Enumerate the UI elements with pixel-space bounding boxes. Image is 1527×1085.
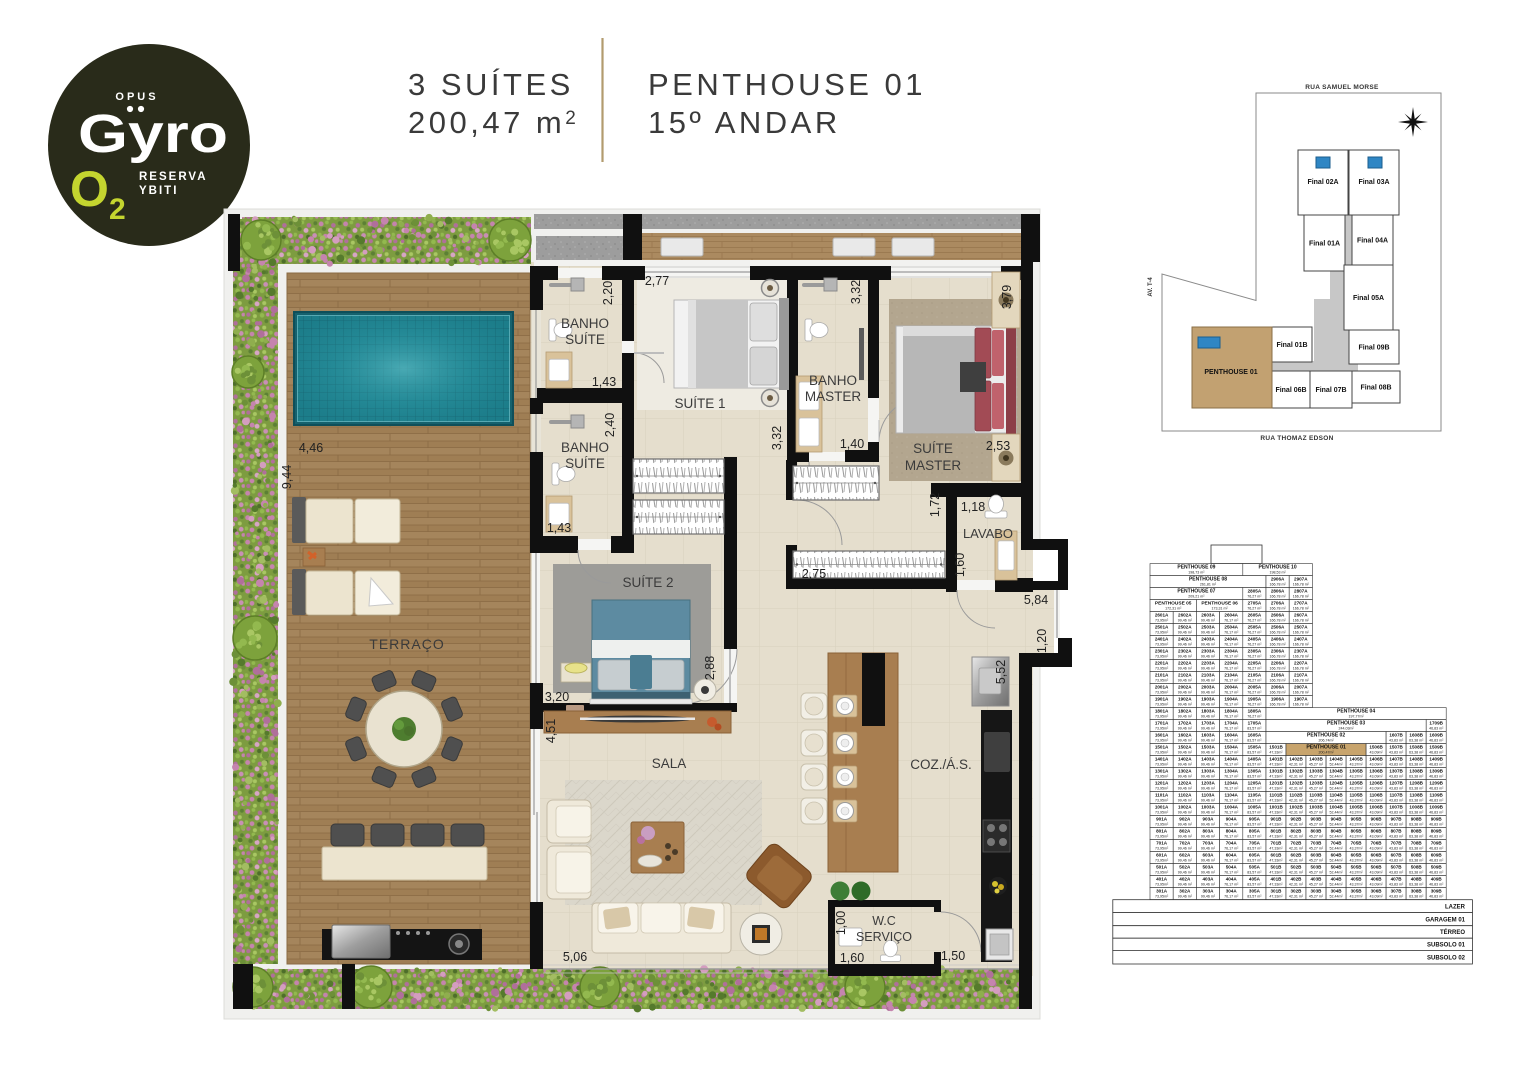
svg-text:1109B: 1109B bbox=[1430, 793, 1444, 798]
svg-text:1804A: 1804A bbox=[1224, 709, 1238, 714]
svg-text:99,46 m²: 99,46 m² bbox=[1178, 631, 1193, 635]
svg-text:166,78 m²: 166,78 m² bbox=[1293, 703, 1310, 707]
svg-text:701A: 701A bbox=[1156, 841, 1168, 846]
svg-text:2806A: 2806A bbox=[1271, 589, 1285, 594]
svg-text:99,46 m²: 99,46 m² bbox=[1178, 787, 1193, 791]
svg-text:408B: 408B bbox=[1411, 877, 1423, 882]
svg-text:46,83 m²: 46,83 m² bbox=[1429, 835, 1444, 839]
svg-text:MASTER: MASTER bbox=[905, 458, 962, 473]
svg-text:99,46 m²: 99,46 m² bbox=[1178, 643, 1193, 647]
svg-text:52,44m²: 52,44m² bbox=[1330, 799, 1344, 803]
svg-text:166,78 m²: 166,78 m² bbox=[1270, 607, 1287, 611]
svg-text:PENTHOUSE 01: PENTHOUSE 01 bbox=[648, 67, 926, 102]
svg-text:1504A: 1504A bbox=[1224, 745, 1238, 750]
svg-text:99,46 m²: 99,46 m² bbox=[1201, 655, 1216, 659]
svg-text:802A: 802A bbox=[1179, 829, 1191, 834]
svg-text:43,37m²: 43,37m² bbox=[1350, 895, 1364, 899]
svg-text:43,83 m²: 43,83 m² bbox=[1389, 835, 1404, 839]
svg-text:403B: 403B bbox=[1311, 877, 1323, 882]
svg-text:2107A: 2107A bbox=[1294, 673, 1308, 678]
svg-text:1205B: 1205B bbox=[1349, 781, 1363, 786]
svg-text:807B: 807B bbox=[1391, 829, 1403, 834]
svg-text:99,46 m²: 99,46 m² bbox=[1201, 715, 1216, 719]
svg-text:3,32: 3,32 bbox=[770, 426, 784, 450]
svg-text:166,78 m²: 166,78 m² bbox=[1270, 703, 1287, 707]
svg-text:RESERVA: RESERVA bbox=[139, 171, 208, 183]
svg-text:1003B: 1003B bbox=[1309, 805, 1323, 810]
svg-text:2101A: 2101A bbox=[1155, 673, 1169, 678]
svg-text:47,33m²: 47,33m² bbox=[1269, 763, 1283, 767]
svg-text:1105B: 1105B bbox=[1349, 793, 1363, 798]
svg-text:63,38 m²: 63,38 m² bbox=[1409, 883, 1424, 887]
svg-text:2005A: 2005A bbox=[1248, 685, 1262, 690]
svg-text:601A: 601A bbox=[1156, 853, 1168, 858]
svg-text:73,95m²: 73,95m² bbox=[1155, 775, 1169, 779]
svg-text:1305A: 1305A bbox=[1248, 769, 1262, 774]
svg-text:2504A: 2504A bbox=[1224, 625, 1238, 630]
svg-text:1508B: 1508B bbox=[1409, 745, 1423, 750]
svg-text:1008B: 1008B bbox=[1409, 805, 1423, 810]
svg-text:1904A: 1904A bbox=[1224, 697, 1238, 702]
svg-text:99,46 m²: 99,46 m² bbox=[1201, 787, 1216, 791]
svg-text:1007B: 1007B bbox=[1389, 805, 1403, 810]
svg-text:43,09m²: 43,09m² bbox=[1370, 871, 1384, 875]
svg-text:1608B: 1608B bbox=[1409, 733, 1423, 738]
svg-text:47,33m²: 47,33m² bbox=[1269, 847, 1283, 851]
svg-text:166,78 m²: 166,78 m² bbox=[1270, 691, 1287, 695]
svg-text:Final 01B: Final 01B bbox=[1276, 342, 1307, 349]
svg-text:BANHO: BANHO bbox=[561, 440, 609, 455]
svg-text:83,57 m²: 83,57 m² bbox=[1247, 859, 1262, 863]
svg-text:904A: 904A bbox=[1226, 817, 1238, 822]
svg-text:99,46 m²: 99,46 m² bbox=[1201, 847, 1216, 851]
svg-text:43,37m²: 43,37m² bbox=[1350, 883, 1364, 887]
svg-text:166,78 m²: 166,78 m² bbox=[1270, 619, 1287, 623]
svg-text:2401A: 2401A bbox=[1155, 637, 1169, 642]
svg-text:206,74m²: 206,74m² bbox=[1319, 739, 1335, 743]
svg-text:83,57 m²: 83,57 m² bbox=[1247, 751, 1262, 755]
svg-text:43,83 m²: 43,83 m² bbox=[1389, 775, 1404, 779]
svg-text:Final 02A: Final 02A bbox=[1307, 179, 1338, 186]
svg-text:166,78 m²: 166,78 m² bbox=[1293, 691, 1310, 695]
svg-text:99,46 m²: 99,46 m² bbox=[1178, 655, 1193, 659]
svg-text:1103A: 1103A bbox=[1201, 793, 1215, 798]
svg-text:43,83 m²: 43,83 m² bbox=[1389, 739, 1404, 743]
svg-text:73,95m²: 73,95m² bbox=[1155, 679, 1169, 683]
svg-text:46,83 m²: 46,83 m² bbox=[1429, 859, 1444, 863]
svg-text:SUÍTE 1: SUÍTE 1 bbox=[674, 396, 725, 411]
svg-text:45,27 m²: 45,27 m² bbox=[1309, 799, 1324, 803]
svg-text:302A: 302A bbox=[1179, 889, 1191, 894]
svg-text:43,09m²: 43,09m² bbox=[1370, 835, 1384, 839]
svg-text:1401A: 1401A bbox=[1155, 757, 1169, 762]
svg-text:2506A: 2506A bbox=[1271, 625, 1285, 630]
svg-text:604A: 604A bbox=[1226, 853, 1238, 858]
svg-text:166,78 m²: 166,78 m² bbox=[1270, 667, 1287, 671]
svg-text:O: O bbox=[70, 161, 109, 217]
svg-text:2305A: 2305A bbox=[1248, 649, 1262, 654]
svg-text:2301A: 2301A bbox=[1155, 649, 1169, 654]
svg-text:1405A: 1405A bbox=[1248, 757, 1262, 762]
svg-text:704B: 704B bbox=[1331, 841, 1343, 846]
svg-text:83,57 m²: 83,57 m² bbox=[1247, 775, 1262, 779]
svg-text:63,38 m²: 63,38 m² bbox=[1409, 775, 1424, 779]
svg-text:63,38 m²: 63,38 m² bbox=[1409, 763, 1424, 767]
svg-text:76,27 m²: 76,27 m² bbox=[1247, 643, 1262, 647]
svg-text:5,06: 5,06 bbox=[563, 950, 587, 964]
svg-text:1309B: 1309B bbox=[1429, 769, 1443, 774]
svg-text:MASTER: MASTER bbox=[805, 389, 862, 404]
svg-text:1902A: 1902A bbox=[1178, 697, 1192, 702]
svg-text:401B: 401B bbox=[1271, 877, 1283, 882]
svg-text:83,57 m²: 83,57 m² bbox=[1247, 823, 1262, 827]
svg-text:73,95m²: 73,95m² bbox=[1155, 895, 1169, 899]
svg-text:43,83 m²: 43,83 m² bbox=[1389, 811, 1404, 815]
svg-text:76,17 m²: 76,17 m² bbox=[1224, 643, 1239, 647]
svg-text:99,46 m²: 99,46 m² bbox=[1201, 823, 1216, 827]
svg-text:Gyro: Gyro bbox=[78, 104, 228, 164]
svg-text:505B: 505B bbox=[1351, 865, 1363, 870]
svg-text:76,17 m²: 76,17 m² bbox=[1224, 835, 1239, 839]
svg-text:LAZER: LAZER bbox=[1445, 904, 1466, 910]
svg-text:1205A: 1205A bbox=[1248, 781, 1262, 786]
svg-text:43,37m²: 43,37m² bbox=[1350, 835, 1364, 839]
svg-text:46,83 m²: 46,83 m² bbox=[1429, 811, 1444, 815]
svg-text:166,78 m²: 166,78 m² bbox=[1270, 595, 1287, 599]
svg-text:504B: 504B bbox=[1331, 865, 1343, 870]
svg-text:99,46 m²: 99,46 m² bbox=[1201, 727, 1216, 731]
svg-text:42,31 m²: 42,31 m² bbox=[1289, 787, 1304, 791]
svg-text:1409B: 1409B bbox=[1429, 757, 1443, 762]
svg-text:46,83 m²: 46,83 m² bbox=[1429, 787, 1444, 791]
svg-text:1604A: 1604A bbox=[1224, 733, 1238, 738]
svg-text:76,17 m²: 76,17 m² bbox=[1224, 619, 1239, 623]
svg-text:706B: 706B bbox=[1371, 841, 1383, 846]
svg-text:1304A: 1304A bbox=[1224, 769, 1238, 774]
svg-text:47,33m²: 47,33m² bbox=[1269, 871, 1283, 875]
svg-text:603A: 603A bbox=[1203, 853, 1215, 858]
svg-text:43,09m²: 43,09m² bbox=[1370, 895, 1384, 899]
svg-text:1107B: 1107B bbox=[1389, 793, 1403, 798]
svg-text:602A: 602A bbox=[1179, 853, 1191, 858]
svg-text:602B: 602B bbox=[1291, 853, 1303, 858]
svg-text:1,72: 1,72 bbox=[928, 493, 942, 517]
svg-text:1002A: 1002A bbox=[1178, 805, 1192, 810]
svg-text:99,46 m²: 99,46 m² bbox=[1201, 703, 1216, 707]
svg-text:1101B: 1101B bbox=[1269, 793, 1283, 798]
svg-text:43,83 m²: 43,83 m² bbox=[1389, 847, 1404, 851]
svg-text:166,78 m²: 166,78 m² bbox=[1293, 643, 1310, 647]
svg-text:73,95m²: 73,95m² bbox=[1155, 811, 1169, 815]
svg-text:YBITI: YBITI bbox=[139, 185, 178, 197]
svg-text:46,83 m²: 46,83 m² bbox=[1429, 775, 1444, 779]
svg-text:SUÍTE 2: SUÍTE 2 bbox=[622, 575, 673, 590]
svg-text:GARAGEM 01: GARAGEM 01 bbox=[1425, 918, 1465, 924]
svg-text:42,31 m²: 42,31 m² bbox=[1289, 835, 1304, 839]
svg-text:2602A: 2602A bbox=[1178, 613, 1192, 618]
svg-text:401A: 401A bbox=[1156, 877, 1168, 882]
svg-text:2501A: 2501A bbox=[1155, 625, 1169, 630]
svg-text:1901A: 1901A bbox=[1155, 697, 1169, 702]
svg-text:PENTHOUSE 01: PENTHOUSE 01 bbox=[1204, 369, 1257, 376]
svg-text:507B: 507B bbox=[1391, 865, 1403, 870]
svg-text:43,83 m²: 43,83 m² bbox=[1389, 751, 1404, 755]
svg-text:2505A: 2505A bbox=[1248, 625, 1262, 630]
svg-text:1302A: 1302A bbox=[1178, 769, 1192, 774]
svg-text:200,47m²: 200,47m² bbox=[1319, 751, 1335, 755]
svg-text:76,17 m²: 76,17 m² bbox=[1224, 775, 1239, 779]
svg-text:2,53: 2,53 bbox=[986, 439, 1010, 453]
svg-text:83,57 m²: 83,57 m² bbox=[1247, 727, 1262, 731]
svg-text:76,17 m²: 76,17 m² bbox=[1224, 787, 1239, 791]
svg-text:42,31 m²: 42,31 m² bbox=[1289, 775, 1304, 779]
svg-text:1,00: 1,00 bbox=[834, 911, 848, 935]
svg-text:99,46 m²: 99,46 m² bbox=[1201, 739, 1216, 743]
svg-text:76,17 m²: 76,17 m² bbox=[1224, 703, 1239, 707]
svg-text:808B: 808B bbox=[1411, 829, 1423, 834]
svg-text:305B: 305B bbox=[1351, 889, 1363, 894]
svg-text:503B: 503B bbox=[1311, 865, 1323, 870]
svg-text:805A: 805A bbox=[1249, 829, 1261, 834]
svg-text:99,46 m²: 99,46 m² bbox=[1201, 895, 1216, 899]
svg-text:99,46 m²: 99,46 m² bbox=[1178, 667, 1193, 671]
svg-text:1401B: 1401B bbox=[1269, 757, 1283, 762]
svg-text:4,51: 4,51 bbox=[544, 719, 558, 743]
svg-text:2103A: 2103A bbox=[1201, 673, 1215, 678]
svg-text:704A: 704A bbox=[1226, 841, 1238, 846]
svg-text:2707A: 2707A bbox=[1294, 601, 1308, 606]
svg-text:76,17 m²: 76,17 m² bbox=[1224, 847, 1239, 851]
svg-text:503A: 503A bbox=[1203, 865, 1215, 870]
svg-text:907B: 907B bbox=[1391, 817, 1403, 822]
svg-text:804B: 804B bbox=[1331, 829, 1343, 834]
svg-text:63,38 m²: 63,38 m² bbox=[1409, 811, 1424, 815]
svg-text:1903A: 1903A bbox=[1201, 697, 1215, 702]
svg-text:303B: 303B bbox=[1311, 889, 1323, 894]
svg-text:73,95m²: 73,95m² bbox=[1155, 691, 1169, 695]
svg-text:1801A: 1801A bbox=[1155, 709, 1169, 714]
svg-text:42,31 m²: 42,31 m² bbox=[1289, 763, 1304, 767]
svg-text:43,37m²: 43,37m² bbox=[1350, 787, 1364, 791]
svg-text:404B: 404B bbox=[1331, 877, 1343, 882]
svg-text:2606A: 2606A bbox=[1271, 613, 1285, 618]
svg-text:5,52: 5,52 bbox=[994, 660, 1008, 684]
svg-text:43,83 m²: 43,83 m² bbox=[1389, 871, 1404, 875]
svg-text:47,33m²: 47,33m² bbox=[1269, 823, 1283, 827]
svg-text:99,46 m²: 99,46 m² bbox=[1178, 799, 1193, 803]
svg-text:502B: 502B bbox=[1291, 865, 1303, 870]
svg-text:404A: 404A bbox=[1226, 877, 1238, 882]
svg-text:2706A: 2706A bbox=[1271, 601, 1285, 606]
svg-text:3,79: 3,79 bbox=[1000, 285, 1014, 309]
svg-text:1203A: 1203A bbox=[1201, 781, 1215, 786]
svg-text:1001A: 1001A bbox=[1155, 805, 1169, 810]
svg-text:1406B: 1406B bbox=[1369, 757, 1383, 762]
svg-text:902A: 902A bbox=[1179, 817, 1191, 822]
svg-text:173,31 m²: 173,31 m² bbox=[1212, 607, 1229, 611]
svg-text:73,95m²: 73,95m² bbox=[1155, 847, 1169, 851]
svg-text:45,27 m²: 45,27 m² bbox=[1309, 811, 1324, 815]
svg-text:73,95m²: 73,95m² bbox=[1155, 643, 1169, 647]
svg-text:43,83 m²: 43,83 m² bbox=[1389, 799, 1404, 803]
svg-text:45,27 m²: 45,27 m² bbox=[1309, 871, 1324, 875]
svg-text:1405B: 1405B bbox=[1349, 757, 1363, 762]
svg-text:73,95m²: 73,95m² bbox=[1155, 835, 1169, 839]
svg-text:603B: 603B bbox=[1311, 853, 1323, 858]
svg-text:43,83 m²: 43,83 m² bbox=[1389, 859, 1404, 863]
svg-text:76,27 m²: 76,27 m² bbox=[1247, 679, 1262, 683]
svg-text:46,83 m²: 46,83 m² bbox=[1429, 823, 1444, 827]
svg-text:261,81 m²: 261,81 m² bbox=[1200, 583, 1217, 587]
svg-text:76,17 m²: 76,17 m² bbox=[1224, 895, 1239, 899]
svg-text:1802A: 1802A bbox=[1178, 709, 1192, 714]
svg-text:1,20: 1,20 bbox=[1035, 629, 1049, 653]
svg-text:1303A: 1303A bbox=[1201, 769, 1215, 774]
svg-text:46,83 m²: 46,83 m² bbox=[1429, 739, 1444, 743]
svg-text:52,44m²: 52,44m² bbox=[1330, 811, 1344, 815]
svg-text:198,53 m²: 198,53 m² bbox=[1270, 571, 1287, 575]
svg-text:2907A: 2907A bbox=[1294, 577, 1308, 582]
svg-text:1103B: 1103B bbox=[1309, 793, 1323, 798]
svg-text:76,17 m²: 76,17 m² bbox=[1224, 667, 1239, 671]
svg-text:2205A: 2205A bbox=[1248, 661, 1262, 666]
svg-text:83,57 m²: 83,57 m² bbox=[1247, 835, 1262, 839]
svg-text:809B: 809B bbox=[1431, 829, 1443, 834]
svg-text:52,44m²: 52,44m² bbox=[1330, 895, 1344, 899]
svg-text:2507A: 2507A bbox=[1294, 625, 1308, 630]
svg-text:901A: 901A bbox=[1156, 817, 1168, 822]
svg-text:42,31 m²: 42,31 m² bbox=[1289, 823, 1304, 827]
svg-text:Final 08B: Final 08B bbox=[1360, 385, 1391, 392]
svg-text:99,46 m²: 99,46 m² bbox=[1178, 739, 1193, 743]
svg-text:200,47 m2: 200,47 m2 bbox=[408, 105, 579, 140]
svg-text:1005B: 1005B bbox=[1349, 805, 1363, 810]
svg-text:63,38 m²: 63,38 m² bbox=[1409, 823, 1424, 827]
svg-text:909B: 909B bbox=[1431, 817, 1443, 822]
svg-text:1304B: 1304B bbox=[1329, 769, 1343, 774]
svg-text:405A: 405A bbox=[1249, 877, 1261, 882]
svg-text:702B: 702B bbox=[1291, 841, 1303, 846]
svg-text:166,78 m²: 166,78 m² bbox=[1293, 631, 1310, 635]
svg-text:244,03m²: 244,03m² bbox=[1339, 727, 1355, 731]
svg-text:45,27 m²: 45,27 m² bbox=[1309, 835, 1324, 839]
svg-text:301A: 301A bbox=[1156, 889, 1168, 894]
svg-text:63,38 m²: 63,38 m² bbox=[1409, 787, 1424, 791]
svg-text:2006A: 2006A bbox=[1271, 685, 1285, 690]
svg-text:198,73 m²: 198,73 m² bbox=[1188, 571, 1205, 575]
svg-text:904B: 904B bbox=[1331, 817, 1343, 822]
svg-text:43,09m²: 43,09m² bbox=[1370, 883, 1384, 887]
svg-text:2604A: 2604A bbox=[1224, 613, 1238, 618]
svg-text:2007A: 2007A bbox=[1294, 685, 1308, 690]
svg-text:1202B: 1202B bbox=[1289, 781, 1303, 786]
svg-text:1009B: 1009B bbox=[1429, 805, 1443, 810]
svg-text:LAVABO: LAVABO bbox=[963, 526, 1013, 541]
svg-text:AV. T-4: AV. T-4 bbox=[1148, 277, 1154, 297]
svg-text:43,37m²: 43,37m² bbox=[1350, 775, 1364, 779]
svg-text:1,60: 1,60 bbox=[840, 951, 864, 965]
svg-text:166,78 m²: 166,78 m² bbox=[1270, 583, 1287, 587]
svg-text:76,27 m²: 76,27 m² bbox=[1247, 619, 1262, 623]
svg-text:1301B: 1301B bbox=[1269, 769, 1283, 774]
svg-text:4,46: 4,46 bbox=[299, 441, 323, 455]
svg-text:166,78 m²: 166,78 m² bbox=[1293, 619, 1310, 623]
svg-text:99,46 m²: 99,46 m² bbox=[1178, 691, 1193, 695]
svg-text:606B: 606B bbox=[1371, 853, 1383, 858]
svg-text:702A: 702A bbox=[1179, 841, 1191, 846]
svg-text:99,46 m²: 99,46 m² bbox=[1201, 799, 1216, 803]
svg-text:2003A: 2003A bbox=[1201, 685, 1215, 690]
svg-text:406B: 406B bbox=[1371, 877, 1383, 882]
svg-text:1,43: 1,43 bbox=[547, 521, 571, 535]
svg-text:1,18: 1,18 bbox=[961, 500, 985, 514]
svg-text:47,33m²: 47,33m² bbox=[1269, 859, 1283, 863]
svg-text:1603A: 1603A bbox=[1201, 733, 1215, 738]
svg-text:83,57 m²: 83,57 m² bbox=[1247, 739, 1262, 743]
svg-text:TERRAÇO: TERRAÇO bbox=[369, 636, 444, 652]
svg-text:83,57 m²: 83,57 m² bbox=[1247, 871, 1262, 875]
svg-text:1208B: 1208B bbox=[1409, 781, 1423, 786]
svg-text:1404B: 1404B bbox=[1329, 757, 1343, 762]
svg-text:73,95m²: 73,95m² bbox=[1155, 715, 1169, 719]
svg-text:2,40: 2,40 bbox=[603, 413, 617, 437]
svg-text:43,37m²: 43,37m² bbox=[1350, 763, 1364, 767]
svg-text:166,78 m²: 166,78 m² bbox=[1293, 667, 1310, 671]
svg-text:46,83 m²: 46,83 m² bbox=[1429, 799, 1444, 803]
svg-text:1705A: 1705A bbox=[1248, 721, 1262, 726]
svg-text:166,78 m²: 166,78 m² bbox=[1270, 679, 1287, 683]
svg-text:1104A: 1104A bbox=[1225, 793, 1239, 798]
svg-text:709B: 709B bbox=[1431, 841, 1443, 846]
svg-text:1004A: 1004A bbox=[1224, 805, 1238, 810]
svg-text:RUA SAMUEL MORSE: RUA SAMUEL MORSE bbox=[1305, 84, 1379, 91]
svg-text:99,46 m²: 99,46 m² bbox=[1201, 751, 1216, 755]
svg-text:73,95m²: 73,95m² bbox=[1155, 667, 1169, 671]
svg-text:1906A: 1906A bbox=[1271, 697, 1285, 702]
svg-text:2,88: 2,88 bbox=[703, 656, 717, 680]
svg-text:52,44m²: 52,44m² bbox=[1330, 835, 1344, 839]
svg-text:SERVIÇO: SERVIÇO bbox=[856, 930, 912, 944]
svg-text:42,31 m²: 42,31 m² bbox=[1289, 799, 1304, 803]
svg-text:76,17 m²: 76,17 m² bbox=[1224, 631, 1239, 635]
svg-text:83,57 m²: 83,57 m² bbox=[1247, 787, 1262, 791]
svg-text:308B: 308B bbox=[1411, 889, 1423, 894]
svg-text:43,83 m²: 43,83 m² bbox=[1389, 763, 1404, 767]
svg-text:1202A: 1202A bbox=[1178, 781, 1192, 786]
svg-text:402A: 402A bbox=[1179, 877, 1191, 882]
svg-text:Final 06B: Final 06B bbox=[1275, 387, 1306, 394]
svg-text:73,95m²: 73,95m² bbox=[1155, 883, 1169, 887]
svg-text:504A: 504A bbox=[1226, 865, 1238, 870]
svg-text:1709B: 1709B bbox=[1429, 721, 1443, 726]
svg-text:46,83 m²: 46,83 m² bbox=[1429, 727, 1444, 731]
svg-text:43,83 m²: 43,83 m² bbox=[1389, 883, 1404, 887]
svg-text:197,77m²: 197,77m² bbox=[1349, 715, 1365, 719]
svg-text:2,77: 2,77 bbox=[645, 274, 669, 288]
svg-text:1005A: 1005A bbox=[1248, 805, 1262, 810]
svg-text:1209B: 1209B bbox=[1429, 781, 1443, 786]
svg-text:905A: 905A bbox=[1249, 817, 1261, 822]
svg-text:2502A: 2502A bbox=[1178, 625, 1192, 630]
svg-text:76,17 m²: 76,17 m² bbox=[1224, 715, 1239, 719]
svg-text:1402A: 1402A bbox=[1178, 757, 1192, 762]
svg-text:45,27 m²: 45,27 m² bbox=[1309, 883, 1324, 887]
svg-text:47,33m²: 47,33m² bbox=[1269, 799, 1283, 803]
svg-text:2807A: 2807A bbox=[1294, 589, 1308, 594]
svg-text:42,31 m²: 42,31 m² bbox=[1289, 883, 1304, 887]
svg-text:73,95m²: 73,95m² bbox=[1155, 655, 1169, 659]
svg-text:1306B: 1306B bbox=[1369, 769, 1383, 774]
